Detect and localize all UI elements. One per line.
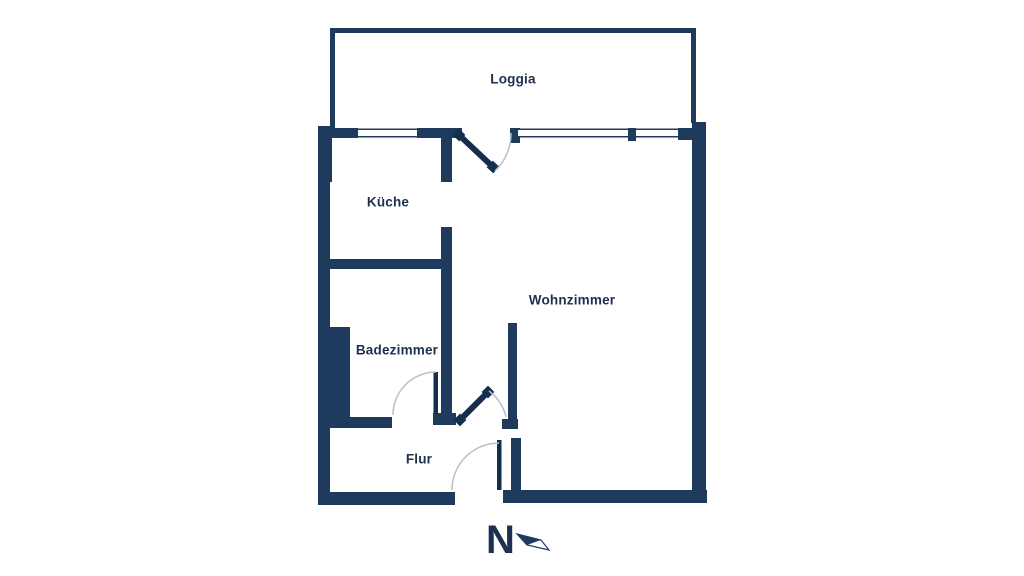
top-wall-segment-a	[330, 128, 358, 138]
loggia-wall-left	[330, 28, 335, 130]
entrance-door-swing-arc	[452, 443, 499, 490]
outer-wall-bottom-left	[318, 492, 455, 505]
living-door-swing-arc	[489, 391, 506, 417]
north-needle-icon	[517, 534, 549, 550]
entry-door-pier	[511, 438, 521, 492]
outer-wall-bottom-right	[503, 490, 707, 503]
loggia-wall-top	[330, 28, 696, 33]
room-label-kueche: Küche	[367, 195, 409, 210]
outer-wall-left	[318, 126, 330, 505]
room-label-loggia: Loggia	[490, 72, 535, 87]
living-window-glass	[518, 129, 678, 137]
compass-north-label: N	[486, 520, 515, 560]
bathroom-door-swing-arc	[393, 372, 436, 415]
kitchen-bath-wall	[330, 259, 451, 269]
bathroom-shaft-wall	[330, 327, 350, 417]
flur-living-wall-hook	[502, 419, 518, 429]
living-window-mullion	[628, 128, 636, 141]
kitchen-living-wall-stub	[441, 137, 452, 182]
bathroom-door-leaf	[434, 372, 439, 414]
room-label-badezimmer: Badezimmer	[356, 343, 438, 358]
kitchen-living-wall-foot	[433, 413, 456, 425]
entrance-door-leaf	[497, 440, 502, 490]
bathroom-flur-wall	[318, 417, 392, 428]
kitchen-window-glass	[358, 129, 417, 137]
floorplan-canvas: Loggia Küche Wohnzimmer Badezimmer Flur …	[0, 0, 1024, 576]
room-label-wohnzimmer: Wohnzimmer	[529, 293, 616, 308]
loggia-wall-right	[691, 28, 696, 123]
room-label-flur: Flur	[406, 452, 432, 467]
living-door-leaf	[461, 393, 487, 419]
outer-wall-right	[692, 122, 706, 503]
living-window-pier-right	[678, 128, 692, 140]
outer-wall-left-pier	[318, 126, 332, 182]
balcony-door-leaf	[459, 135, 493, 167]
flur-living-wall	[508, 323, 517, 420]
kitchen-living-wall-main	[441, 227, 452, 415]
